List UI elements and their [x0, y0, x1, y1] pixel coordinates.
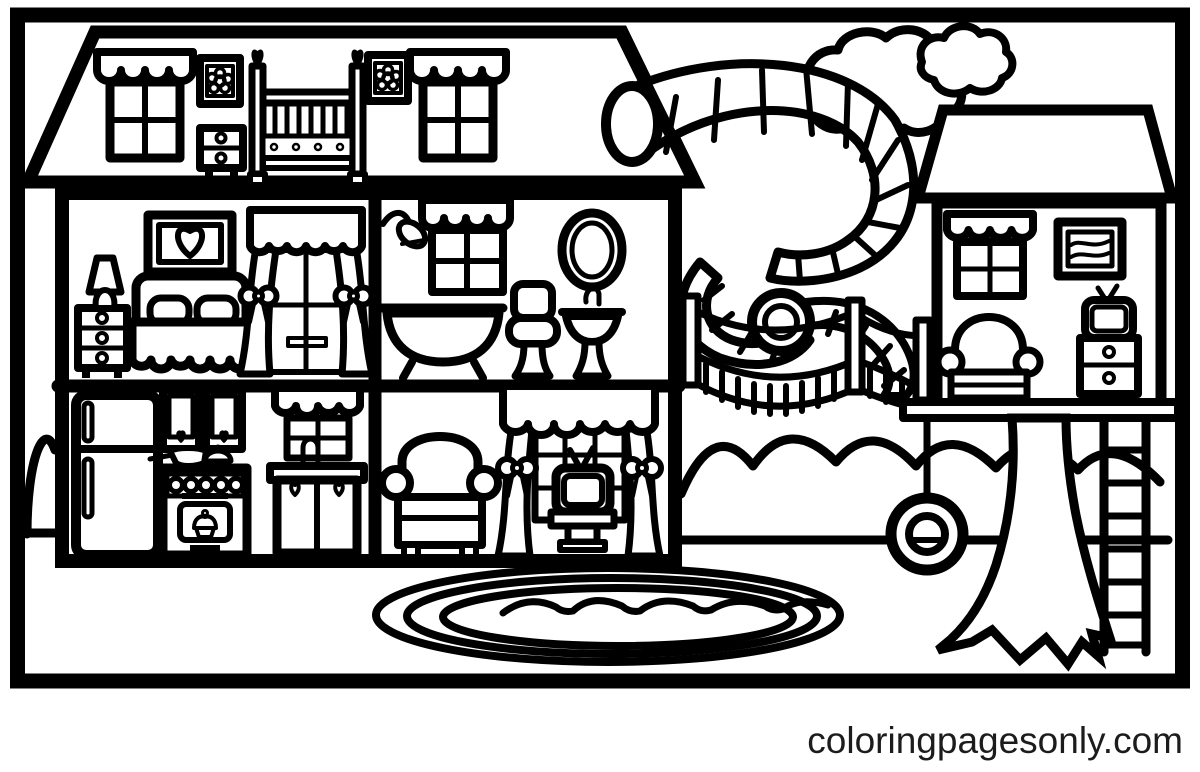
treehouse-window [947, 214, 1033, 296]
toilet-bowl [509, 318, 557, 344]
coloring-page: coloringpagesonly.com [0, 0, 1200, 772]
valance [250, 210, 362, 252]
flower-picture-right [368, 55, 408, 101]
treehouse [903, 110, 1178, 418]
frying-pan [170, 448, 206, 466]
bedroom-window [240, 210, 372, 374]
kitchen [76, 388, 364, 562]
fridge-handle [84, 403, 92, 441]
drawer-handle [190, 545, 220, 551]
awning [97, 52, 193, 81]
sink-unit [270, 388, 364, 561]
treehouse-tv [1080, 286, 1138, 401]
armrest [470, 469, 498, 497]
bridge-post-middle [848, 300, 862, 392]
table-lamp [89, 258, 121, 308]
armchair [382, 437, 498, 558]
heart-picture [148, 215, 232, 272]
attic-window-right [410, 52, 506, 158]
bed [132, 276, 250, 369]
flower-picture-left [200, 58, 240, 104]
valance [503, 386, 655, 435]
treehouse-picture [1058, 222, 1122, 276]
coloring-page-artwork: coloringpagesonly.com [0, 0, 1200, 772]
toilet-tank [514, 284, 552, 318]
fridge-handle [84, 459, 92, 517]
dresser [78, 308, 127, 378]
slide-exit-opening [752, 293, 810, 351]
tv-table-base [560, 542, 605, 550]
refrigerator [76, 395, 158, 555]
upper-cabinets [163, 390, 242, 449]
awning [947, 214, 1033, 238]
nightstand [200, 128, 243, 178]
tire-inner [909, 516, 945, 552]
armrest [382, 469, 410, 497]
oven-handle [182, 493, 228, 499]
bathroom-window [422, 200, 510, 292]
watermark-text: coloringpagesonly.com [807, 720, 1183, 761]
attic-window-left [97, 52, 193, 158]
awning [410, 52, 506, 81]
bridge-post-left [683, 296, 698, 385]
treehouse-roof [918, 110, 1172, 198]
awning [422, 200, 510, 228]
mirror [562, 213, 622, 287]
blanket [132, 322, 250, 369]
cloud-small [921, 26, 1013, 93]
bridge-post-right [916, 320, 930, 400]
awning [275, 388, 360, 416]
dollhouse [28, 32, 695, 562]
